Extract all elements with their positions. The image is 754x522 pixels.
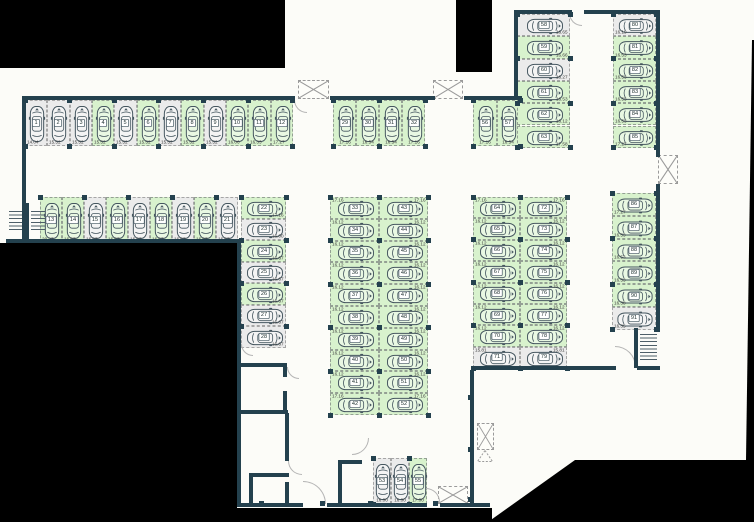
parking-stall-58[interactable]: 5816.65	[517, 14, 570, 36]
parking-stall-68[interactable]: 6816.12	[473, 283, 520, 304]
stall-number: 2	[55, 119, 63, 127]
parking-stall-86[interactable]: 8617.27	[612, 193, 656, 216]
column-marker	[433, 501, 438, 506]
parking-stall-48[interactable]: 4816.12	[379, 306, 428, 328]
stall-number: 37	[349, 291, 360, 299]
column-marker	[377, 413, 382, 418]
column-marker	[377, 238, 382, 243]
clipped-region	[456, 0, 492, 72]
column-marker	[610, 236, 615, 241]
stall-area-label: 16.12	[553, 262, 565, 267]
stall-area-label: 17.16	[332, 198, 344, 203]
parking-stall-43[interactable]: 4317.16	[379, 197, 428, 219]
shaft-icon	[433, 80, 463, 99]
stall-number: 33	[349, 204, 360, 212]
parking-stall-1[interactable]: 114.04	[25, 100, 47, 146]
column-marker	[468, 497, 473, 502]
column-marker	[239, 281, 244, 286]
column-marker	[23, 98, 28, 103]
stall-area-label: 16.27	[556, 75, 568, 80]
parking-stall-10[interactable]: 1016.06	[226, 100, 248, 146]
stall-number: 64	[491, 204, 502, 212]
column-marker	[610, 191, 615, 196]
column-marker	[423, 98, 428, 103]
wall-segment	[338, 460, 362, 464]
stall-area-label: 16.53	[615, 53, 627, 58]
parking-stall-79[interactable]: 7915.81	[520, 347, 567, 368]
stall-area-label: 16.67	[272, 256, 284, 261]
parking-stall-25[interactable]: 2516.67	[241, 262, 286, 284]
stall-number: 66	[491, 246, 502, 254]
column-marker	[471, 195, 476, 200]
parking-stall-47[interactable]: 4716.12	[379, 284, 428, 306]
parking-stall-82[interactable]: 8216.53	[613, 59, 656, 81]
stall-area-label: 15.81	[475, 348, 487, 353]
parking-stall-52[interactable]: 5217.16	[379, 393, 428, 415]
column-marker	[67, 144, 72, 149]
parking-stall-22[interactable]: 2217.16	[241, 197, 286, 219]
stall-number: 15	[89, 216, 100, 224]
parking-stall-51[interactable]: 5116.12	[379, 371, 428, 393]
wall-segment	[473, 366, 616, 370]
stall-area-label: 16.12	[414, 263, 426, 268]
column-marker	[377, 369, 382, 374]
column-marker	[320, 501, 325, 506]
parking-stall-15[interactable]: 1516.67	[84, 197, 106, 243]
wall-segment	[470, 370, 474, 507]
parking-stall-62[interactable]: 6216.12	[517, 103, 570, 125]
stall-area-label: 17.16	[553, 198, 565, 203]
column-marker	[654, 12, 659, 17]
parking-stall-8[interactable]: 815.52	[181, 100, 203, 146]
column-marker	[471, 366, 476, 371]
wall-segment	[656, 10, 660, 157]
stall-area-label: 16.00	[272, 234, 284, 239]
stall-area-label: 15.52	[161, 140, 173, 145]
wall-segment	[637, 366, 660, 370]
parking-stall-74[interactable]: 7416.12	[520, 240, 567, 261]
column-marker	[331, 144, 336, 149]
parking-stall-54[interactable]: 5416.00	[391, 458, 409, 504]
stall-number: 79	[538, 353, 549, 361]
stall-area-label: 17.58	[556, 142, 568, 147]
parking-stall-37[interactable]: 3716.12	[330, 284, 379, 306]
parking-stall-40[interactable]: 4016.12	[330, 350, 379, 372]
parking-stall-42[interactable]: 4217.16	[330, 393, 379, 415]
column-marker	[654, 191, 659, 196]
column-marker	[377, 98, 382, 103]
parking-stall-81[interactable]: 8116.53	[613, 36, 656, 58]
column-marker	[568, 101, 573, 106]
parking-stall-6[interactable]: 615.52	[137, 100, 159, 146]
column-marker	[423, 144, 428, 149]
stall-area-label: 16.12	[553, 284, 565, 289]
stall-area-label: 16.12	[332, 351, 344, 356]
stall-number: 63	[538, 133, 549, 141]
parking-stall-75[interactable]: 7516.12	[520, 261, 567, 282]
column-marker	[284, 238, 289, 243]
parking-stall-88[interactable]: 8816.53	[612, 239, 656, 262]
parking-stall-2[interactable]: 215.52	[47, 100, 69, 146]
parking-stall-21[interactable]: 2116.67	[216, 197, 238, 243]
column-marker	[471, 144, 476, 149]
stall-number: 61	[538, 88, 549, 96]
stall-number: 31	[385, 119, 396, 127]
stall-area-label: 16.54	[362, 140, 374, 145]
parking-stall-3[interactable]: 315.52	[70, 100, 92, 146]
stall-area-label: 15.52	[116, 140, 128, 145]
column-marker	[568, 56, 573, 61]
stall-area-label: 16.12	[332, 242, 344, 247]
column-marker	[468, 395, 473, 400]
stall-area-label: 17.16	[272, 213, 284, 218]
parking-stall-61[interactable]: 6116.53	[517, 81, 570, 103]
stall-number: 24	[258, 247, 269, 255]
parking-stall-33[interactable]: 3317.16	[330, 197, 379, 219]
stall-area-label: 16.12	[553, 305, 565, 310]
stall-area-label: 16.12	[332, 307, 344, 312]
stall-area-label: 17.16	[414, 394, 426, 399]
stall-number: 1	[32, 119, 40, 127]
parking-stall-55[interactable]: 5517.00	[409, 458, 427, 504]
column-marker	[611, 101, 616, 106]
stall-area-label: 17.27	[615, 142, 627, 147]
stall-number: 6	[144, 119, 152, 127]
door-swing-icon	[294, 100, 307, 113]
column-marker	[426, 369, 431, 374]
column-marker	[328, 325, 333, 330]
parking-stall-56[interactable]: 5617.16	[473, 100, 497, 146]
column-marker	[426, 282, 431, 287]
stall-number: 56	[479, 119, 490, 127]
stall-number: 75	[538, 268, 549, 276]
column-marker	[515, 145, 520, 150]
column-marker	[654, 327, 659, 332]
parking-stall-67[interactable]: 6716.12	[473, 261, 520, 282]
stall-number: 25	[258, 268, 269, 276]
column-marker	[328, 282, 333, 287]
column-marker	[126, 195, 131, 200]
door-swing-icon	[352, 438, 369, 455]
wall-segment	[237, 239, 241, 507]
stall-area-label: 16.67	[272, 277, 284, 282]
stall-area-label: 16.12	[332, 285, 344, 290]
stall-number: 81	[629, 43, 640, 51]
stall-number: 21	[221, 216, 232, 224]
stall-number: 10	[232, 119, 243, 127]
parking-stall-59[interactable]: 5916.66	[517, 36, 570, 58]
column-marker	[239, 324, 244, 329]
column-marker	[610, 327, 615, 332]
parking-stall-91[interactable]: 9116.35	[612, 307, 656, 330]
parking-stall-26[interactable]: 2616.67	[241, 283, 286, 305]
stall-area-label: 15.52	[206, 140, 218, 145]
stall-number: 20	[199, 216, 210, 224]
column-marker	[565, 366, 570, 371]
door-swing-icon	[287, 367, 299, 379]
stall-number: 80	[629, 21, 640, 29]
stall-number: 13	[45, 216, 56, 224]
parking-stall-80[interactable]: 8016.19	[613, 14, 656, 36]
parking-stall-69[interactable]: 6916.12	[473, 304, 520, 325]
parking-stall-70[interactable]: 7016.12	[473, 325, 520, 346]
stall-area-label: 16.54	[385, 140, 397, 145]
stall-number: 45	[398, 247, 409, 255]
stall-number: 22	[258, 204, 269, 212]
parking-stall-7[interactable]: 715.52	[159, 100, 181, 146]
column-marker	[515, 56, 520, 61]
marker-triangle-icon	[477, 450, 493, 462]
column-marker	[328, 413, 333, 418]
stall-area-label: 16.12	[553, 219, 565, 224]
stall-number: 88	[628, 246, 639, 254]
stall-number: 47	[398, 291, 409, 299]
parking-stall-35[interactable]: 3516.12	[330, 241, 379, 263]
stall-area-label: 16.53	[556, 98, 568, 103]
parking-stall-78[interactable]: 7816.12	[520, 325, 567, 346]
column-marker	[471, 237, 476, 242]
column-marker	[67, 98, 72, 103]
stall-number: 7	[166, 119, 174, 127]
parking-stall-76[interactable]: 7616.12	[520, 283, 567, 304]
wall-segment	[283, 363, 287, 377]
parking-stall-71[interactable]: 7115.81	[473, 347, 520, 368]
stall-area-label: 16.67	[272, 299, 284, 304]
parking-stall-14[interactable]: 1416.67	[62, 197, 84, 243]
column-marker	[331, 98, 336, 103]
stall-number: 19	[177, 216, 188, 224]
parking-stall-39[interactable]: 3916.12	[330, 328, 379, 350]
parking-stall-36[interactable]: 3616.12	[330, 262, 379, 284]
parking-stall-38[interactable]: 3816.12	[330, 306, 379, 328]
wall-segment	[240, 363, 286, 367]
column-marker	[290, 98, 295, 103]
shaft-icon	[298, 80, 329, 99]
column-marker	[368, 501, 373, 506]
parking-stall-19[interactable]: 1916.67	[172, 197, 194, 243]
stall-number: 9	[211, 119, 219, 127]
column-marker	[654, 56, 659, 61]
parking-stall-65[interactable]: 6516.12	[473, 218, 520, 239]
stall-number: 55	[412, 477, 423, 485]
column-marker	[654, 145, 659, 150]
column-marker	[112, 144, 117, 149]
parking-stall-12[interactable]: 1217.27	[271, 100, 293, 146]
stall-number: 27	[258, 311, 269, 319]
parking-stall-18[interactable]: 1816.67	[150, 197, 172, 243]
wall-segment	[440, 503, 490, 507]
stall-area-label: 16.33	[250, 140, 262, 145]
parking-stall-5[interactable]: 515.52	[114, 100, 136, 146]
parking-stall-44[interactable]: 4416.12	[379, 219, 428, 241]
parking-stall-24[interactable]: 2416.67	[241, 240, 286, 262]
stall-area-label: 16.53	[614, 256, 626, 261]
column-marker	[515, 12, 520, 17]
stall-area-label: 16.12	[475, 219, 487, 224]
shaft-icon	[438, 486, 468, 504]
parking-stall-17[interactable]: 1716.67	[128, 197, 150, 243]
stall-area-label: 16.12	[332, 329, 344, 334]
stall-number: 43	[398, 204, 409, 212]
wall-segment	[285, 482, 289, 505]
stall-number: 68	[491, 289, 502, 297]
stall-number: 87	[628, 223, 639, 231]
parking-stall-29[interactable]: 2917.16	[333, 100, 356, 146]
parking-stall-64[interactable]: 6417.16	[473, 197, 520, 218]
shaft-icon	[658, 155, 678, 184]
stall-area-label: 16.12	[414, 285, 426, 290]
stall-area-label: 17.16	[408, 140, 420, 145]
parking-stall-4[interactable]: 415.52	[92, 100, 114, 146]
stall-number: 38	[349, 313, 360, 321]
stall-number: 26	[258, 290, 269, 298]
stall-number: 72	[538, 204, 549, 212]
column-marker	[377, 282, 382, 287]
parking-stall-73[interactable]: 7316.12	[520, 218, 567, 239]
stall-area-label: 15.52	[72, 140, 84, 145]
stall-number: 59	[538, 43, 549, 51]
wall-segment	[240, 410, 288, 414]
stall-number: 49	[398, 335, 409, 343]
parking-stall-34[interactable]: 3416.12	[330, 219, 379, 241]
column-marker	[515, 101, 520, 106]
parking-stall-50[interactable]: 5016.12	[379, 350, 428, 372]
column-marker	[654, 101, 659, 106]
column-marker	[426, 195, 431, 200]
stall-area-label: 16.12	[553, 241, 565, 246]
stall-area-label: 16.12	[475, 326, 487, 331]
stall-number: 67	[491, 268, 502, 276]
column-marker	[518, 323, 523, 328]
stall-number: 91	[628, 314, 639, 322]
column-marker	[170, 195, 175, 200]
clipped-region	[237, 508, 492, 522]
column-marker	[201, 98, 206, 103]
stall-area-label: 16.53	[615, 98, 627, 103]
column-marker	[654, 282, 659, 287]
clipped-region	[744, 40, 754, 460]
stall-number: 58	[538, 21, 549, 29]
wall-segment	[656, 184, 660, 332]
stall-number: 44	[398, 226, 409, 234]
column-marker	[112, 98, 117, 103]
stall-area-label: 16.65	[556, 31, 568, 36]
parking-stall-30[interactable]: 3016.54	[356, 100, 379, 146]
stall-area-label: 15.52	[139, 140, 151, 145]
parking-stall-27[interactable]: 2716.67	[241, 305, 286, 327]
stall-number: 4	[99, 119, 107, 127]
column-marker	[565, 195, 570, 200]
stall-area-label: 16.12	[332, 220, 344, 225]
stall-number: 69	[491, 311, 502, 319]
stall-area-label: 16.67	[272, 342, 284, 347]
wall-segment	[330, 96, 435, 100]
column-marker	[284, 281, 289, 286]
column-marker	[214, 195, 219, 200]
parking-stall-83[interactable]: 8316.53	[613, 81, 656, 103]
column-marker	[611, 145, 616, 150]
stall-area-label: 16.53	[615, 120, 627, 125]
parking-stall-45[interactable]: 4516.12	[379, 241, 428, 263]
column-marker	[371, 456, 376, 461]
parking-stall-11[interactable]: 1116.33	[248, 100, 270, 146]
column-marker	[239, 195, 244, 200]
stall-number: 36	[349, 269, 360, 277]
stall-number: 18	[155, 216, 166, 224]
wall-segment	[338, 460, 342, 505]
stall-area-label: 14.04	[27, 140, 39, 145]
stall-number: 62	[538, 110, 549, 118]
stall-area-label: 15.52	[183, 140, 195, 145]
column-marker	[468, 447, 473, 452]
parking-stall-90[interactable]: 9016.38	[612, 284, 656, 307]
column-marker	[246, 98, 251, 103]
parking-stall-20[interactable]: 2016.67	[194, 197, 216, 243]
column-marker	[407, 456, 412, 461]
column-marker	[328, 238, 333, 243]
stall-area-label: 16.66	[556, 53, 568, 58]
parking-stall-84[interactable]: 8416.53	[613, 103, 656, 125]
stall-number: 82	[629, 66, 640, 74]
parking-stall-66[interactable]: 6616.12	[473, 240, 520, 261]
parking-stall-23[interactable]: 2316.00	[241, 219, 286, 241]
stall-area-label: 16.12	[414, 329, 426, 334]
stall-number: 74	[538, 246, 549, 254]
parking-floor-plan: 114.04215.52315.52415.52515.52615.52715.…	[0, 0, 754, 522]
stall-area-label: 17.16	[332, 394, 344, 399]
parking-stall-16[interactable]: 1616.67	[106, 197, 128, 243]
parking-stall-31[interactable]: 3116.54	[379, 100, 402, 146]
stall-number: 28	[258, 333, 269, 341]
parking-stall-77[interactable]: 7716.12	[520, 304, 567, 325]
stall-area-label: 15.52	[49, 140, 61, 145]
column-marker	[23, 144, 28, 149]
parking-stall-32[interactable]: 3217.16	[402, 100, 425, 146]
stall-number: 5	[122, 119, 130, 127]
stall-area-label: 16.12	[414, 372, 426, 377]
stall-number: 34	[349, 226, 360, 234]
parking-stall-72[interactable]: 7217.16	[520, 197, 567, 218]
stall-area-label: 15.81	[553, 348, 565, 353]
stall-area-label: 16.12	[556, 120, 568, 125]
parking-stall-49[interactable]: 4916.12	[379, 328, 428, 350]
parking-stall-85[interactable]: 8517.27	[613, 126, 656, 148]
column-marker	[407, 502, 412, 507]
column-marker	[156, 144, 161, 149]
parking-stall-87[interactable]: 8716.53	[612, 216, 656, 239]
column-marker	[565, 280, 570, 285]
parking-stall-89[interactable]: 8916.53	[612, 261, 656, 284]
stall-number: 90	[628, 292, 639, 300]
stall-number: 32	[408, 119, 419, 127]
column-marker	[38, 195, 43, 200]
stall-number: 23	[258, 225, 269, 233]
parking-stall-46[interactable]: 4616.12	[379, 262, 428, 284]
parking-stall-60[interactable]: 6016.27	[517, 59, 570, 81]
stall-area-label: 16.12	[414, 307, 426, 312]
parking-stall-41[interactable]: 4116.12	[330, 371, 379, 393]
parking-stall-63[interactable]: 6317.58	[517, 126, 570, 148]
stall-area-label: 16.53	[614, 233, 626, 238]
parking-stall-53[interactable]: 5316.00	[373, 458, 391, 504]
parking-stall-9[interactable]: 915.52	[204, 100, 226, 146]
column-marker	[518, 237, 523, 242]
door-swing-icon	[615, 346, 636, 367]
column-marker	[426, 325, 431, 330]
stall-number: 46	[398, 269, 409, 277]
stall-area-label: 16.19	[615, 31, 627, 36]
column-marker	[259, 501, 264, 506]
